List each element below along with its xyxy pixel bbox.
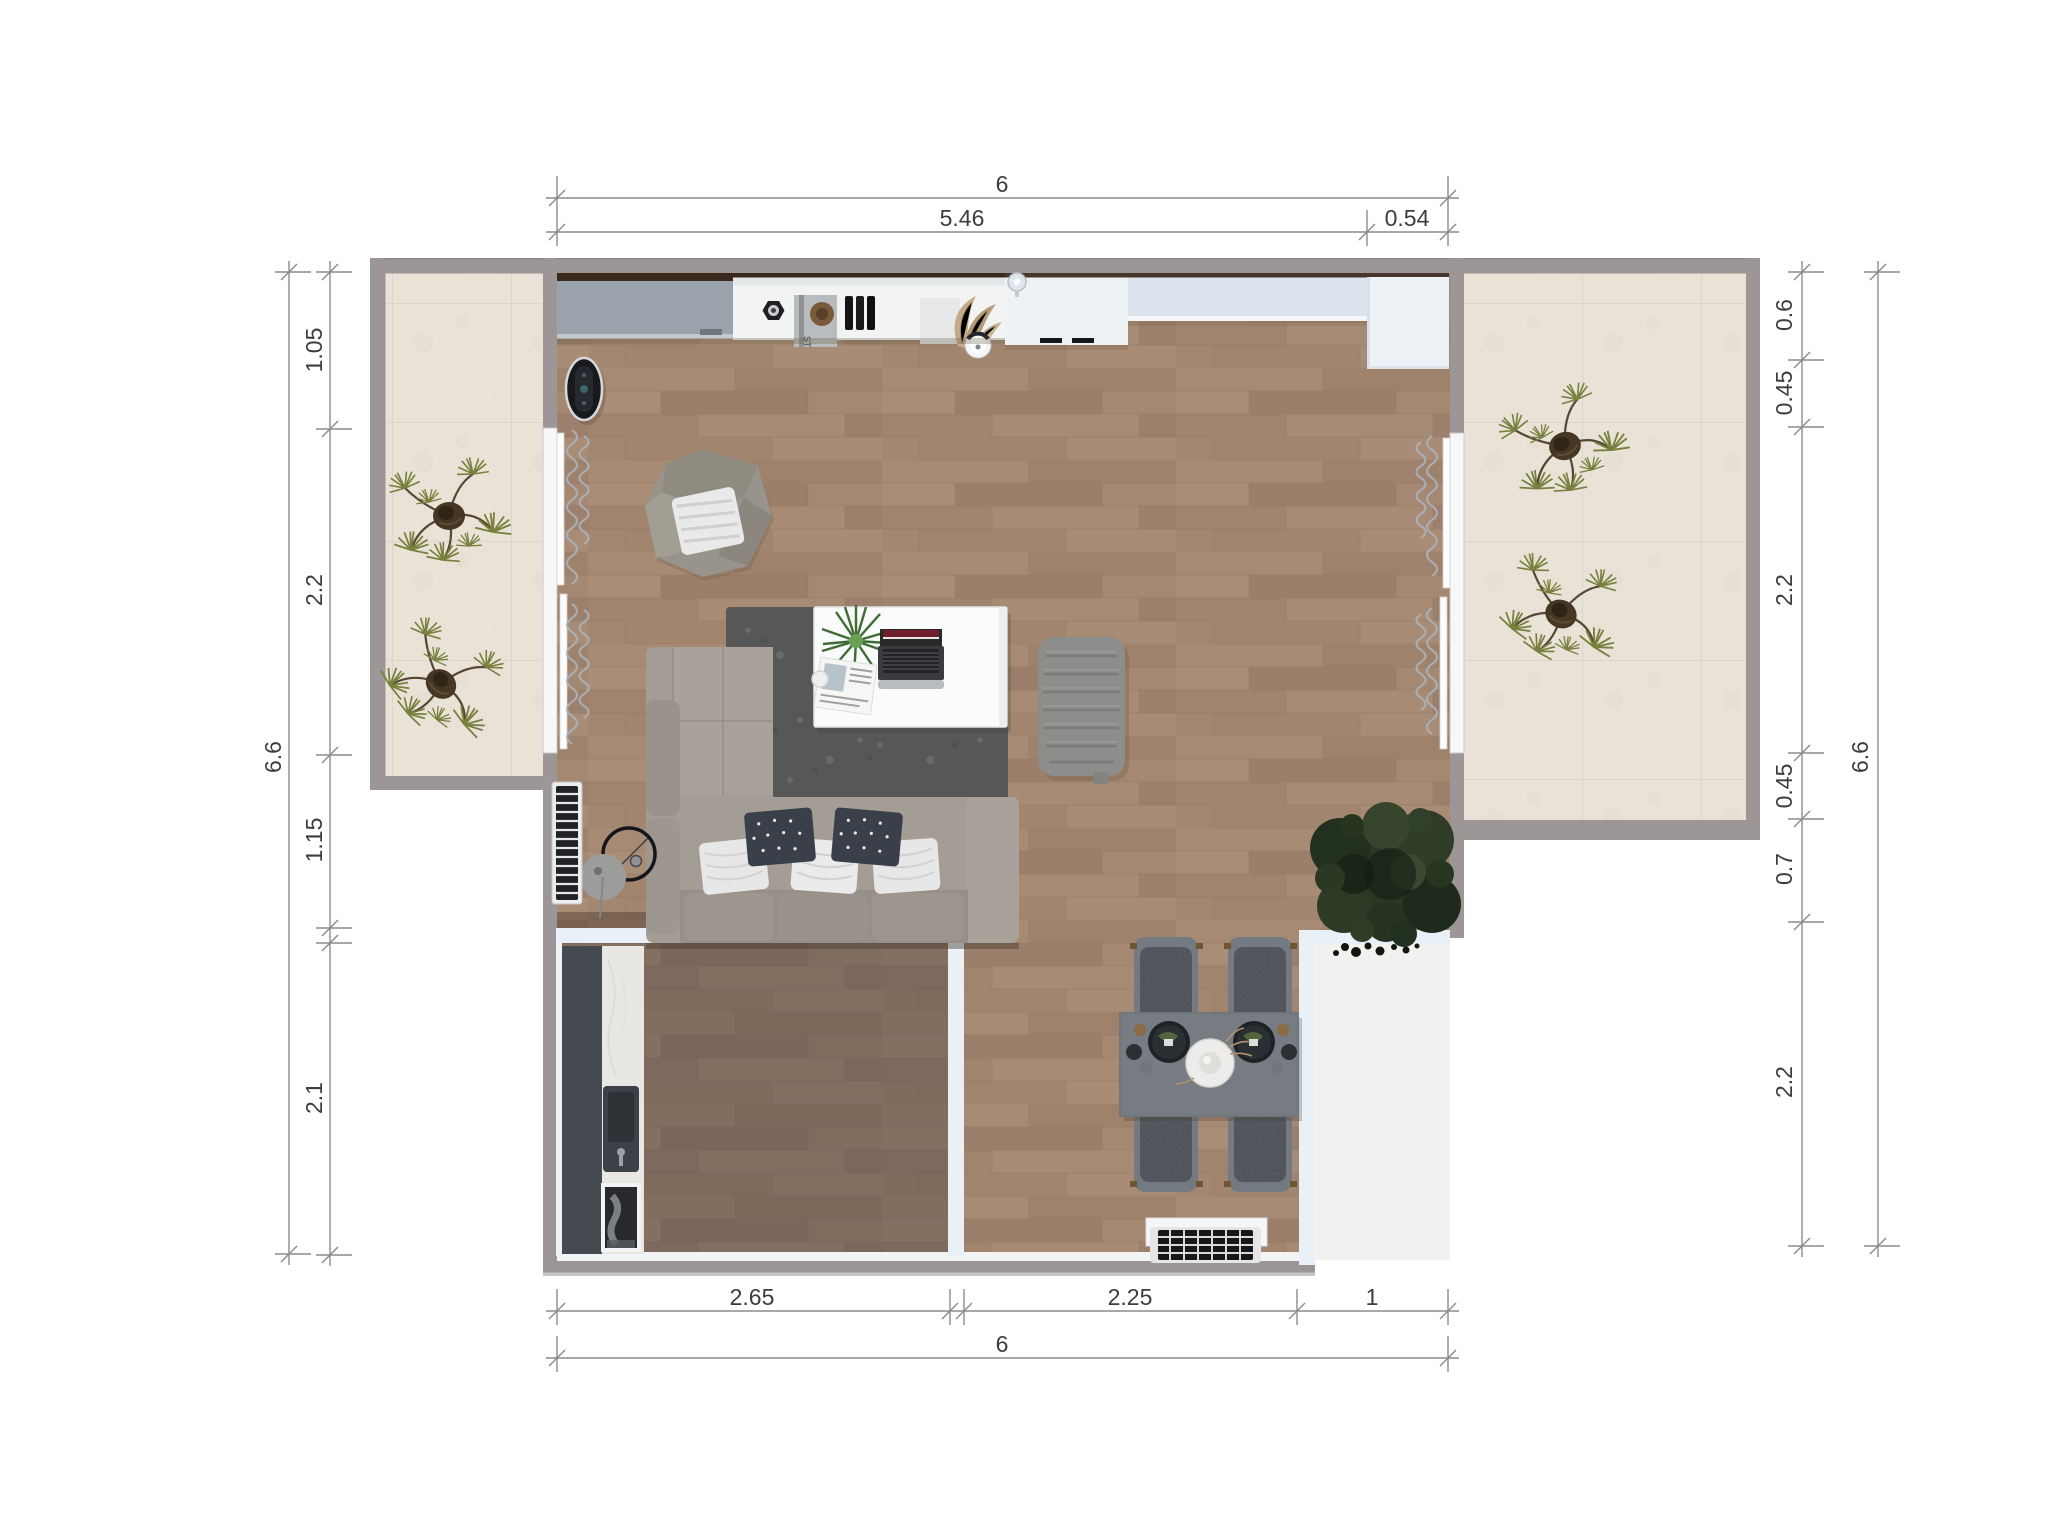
svg-text:1.05: 1.05 <box>301 328 327 373</box>
svg-text:0.6: 0.6 <box>1771 299 1797 331</box>
svg-text:0.45: 0.45 <box>1771 764 1797 809</box>
svg-text:1.15: 1.15 <box>301 818 327 863</box>
svg-text:2.2: 2.2 <box>1771 574 1797 606</box>
svg-text:6.6: 6.6 <box>1847 741 1873 773</box>
svg-text:6: 6 <box>996 1331 1009 1357</box>
svg-text:2.1: 2.1 <box>301 1082 327 1114</box>
svg-text:2.65: 2.65 <box>730 1284 775 1310</box>
svg-text:0.45: 0.45 <box>1771 371 1797 416</box>
svg-text:2.2: 2.2 <box>1771 1066 1797 1098</box>
svg-text:5.46: 5.46 <box>940 205 985 231</box>
svg-text:1: 1 <box>1366 1284 1379 1310</box>
svg-text:2.2: 2.2 <box>301 574 327 606</box>
svg-text:6.6: 6.6 <box>260 741 286 773</box>
svg-text:0.54: 0.54 <box>1385 205 1430 231</box>
svg-text:0.7: 0.7 <box>1771 853 1797 885</box>
svg-text:6: 6 <box>996 171 1009 197</box>
svg-text:2.25: 2.25 <box>1108 1284 1153 1310</box>
